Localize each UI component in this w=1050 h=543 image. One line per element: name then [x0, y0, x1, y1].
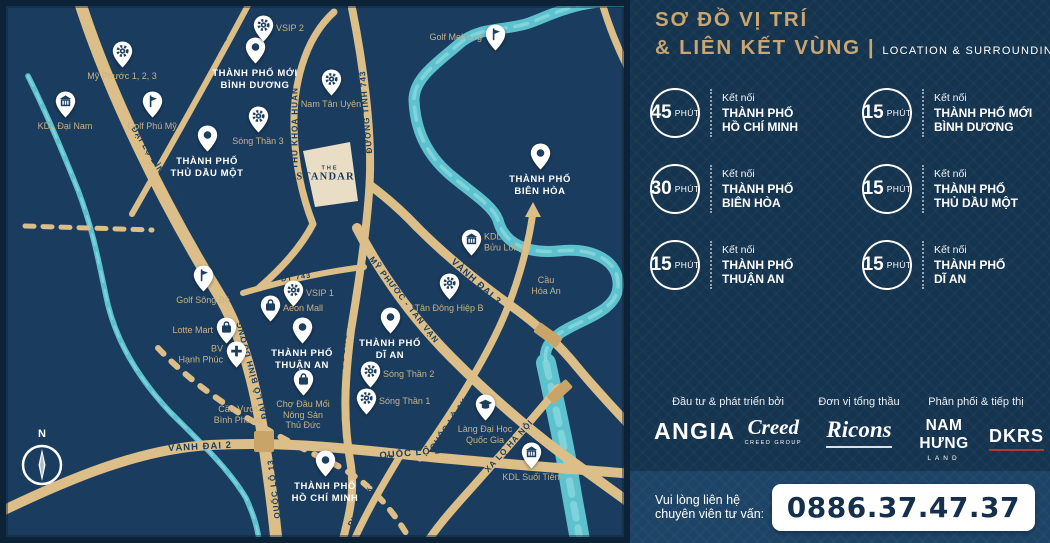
dotted-separator [710, 89, 712, 137]
poi-label: Aeon Mall [283, 303, 323, 314]
time-circle: 15PHÚT [650, 240, 700, 290]
namhung-land-subtext: LAND [908, 455, 980, 462]
city-label: THÀNH PHỐ THỦ DẦU MỘT [142, 156, 272, 179]
time-value: 45 [651, 102, 672, 124]
travel-time-item: 15PHÚTKết nốiTHÀNH PHỐ MỚI BÌNH DƯƠNG [862, 86, 1050, 140]
time-circle: 15PHÚT [862, 240, 912, 290]
time-unit: PHÚT [887, 260, 912, 270]
poi-label: Golf MeKong [429, 32, 482, 43]
cross-poi-pin [226, 341, 247, 368]
time-prefix: Kết nối [722, 244, 793, 258]
bag-poi-pin [260, 295, 281, 322]
title-divider: | [868, 36, 876, 59]
time-prefix: Kết nối [934, 168, 1018, 182]
creed-group-subtext: CREED GROUP [745, 440, 802, 446]
poi-label: Sóng Thần 3 [203, 136, 313, 147]
page-title-line2: & LIÊN KẾT VÙNG|LOCATION & SURROUNDINGS [655, 34, 1040, 65]
ricons-logo: Ricons [826, 417, 891, 448]
time-destination: Kết nốiTHÀNH PHỐ BIÊN HÒA [722, 168, 793, 211]
namhung-logo-text: NAM HƯNG [919, 417, 968, 452]
poi-label: VSIP 1 [306, 288, 334, 299]
dotted-separator [922, 89, 924, 137]
info-panel: SƠ ĐỒ VỊ TRÍ & LIÊN KẾT VÙNG|LOCATION & … [630, 0, 1050, 543]
contact-label: Vui lòng liên hệ chuyên viên tư vấn: [630, 493, 772, 521]
dkrs-logo: DKRS [989, 428, 1044, 452]
road-label: MỸ PHƯỚC - TÂN VẠN [367, 255, 440, 345]
location-map-infographic: THE STANDARD ĐẠI LỘ BÌNH DƯƠNGĐƯỜNG TỈNH… [0, 0, 1050, 543]
time-destination: Kết nốiTHÀNH PHỐ THỦ DẦU MỘT [934, 168, 1018, 211]
partner-group-contractor: Đơn vị tổng thầu Ricons [816, 396, 902, 448]
distributor-heading: Phân phối & tiếp thị [908, 396, 1044, 408]
contractor-heading: Đơn vị tổng thầu [816, 396, 902, 408]
gear-poi-pin [112, 41, 133, 68]
grad-poi-pin [475, 394, 496, 421]
compass-rose: N [18, 428, 66, 494]
compass-north-label: N [18, 428, 66, 440]
travel-times-grid: 45PHÚTKết nốiTHÀNH PHỐ HỒ CHÍ MINH15PHÚT… [650, 86, 1050, 292]
gear-poi-pin [321, 69, 342, 96]
city-pin [530, 143, 551, 170]
gear-poi-pin [356, 388, 377, 415]
partner-group-distributor: Phân phối & tiếp thị NAM HƯNG LAND DKRS [908, 396, 1044, 462]
partner-group-developer: Đầu tư & phát triển bởi ANGIA Creed CREE… [644, 396, 812, 446]
time-circle: 45PHÚT [650, 88, 700, 138]
time-prefix: Kết nối [934, 92, 1032, 106]
travel-time-item: 15PHÚTKết nốiTHÀNH PHỐ THUẬN AN [650, 238, 862, 292]
poi-label: Chợ Đầu Mối Nông Sản Thủ Đức [248, 399, 358, 431]
time-destination: Kết nốiTHÀNH PHỐ MỚI BÌNH DƯƠNG [934, 92, 1032, 135]
panel-header: SƠ ĐỒ VỊ TRÍ & LIÊN KẾT VÙNG|LOCATION & … [655, 6, 1040, 65]
phone-number[interactable]: 0886.37.47.37 [772, 484, 1035, 531]
city-label: THÀNH PHỐ DĨ AN [325, 338, 455, 361]
flag-poi-pin [142, 91, 163, 118]
time-prefix: Kết nối [722, 92, 798, 106]
page-title-line1: SƠ ĐỒ VỊ TRÍ [655, 6, 1040, 34]
poi-label: VSIP 2 [276, 23, 304, 34]
compass-icon [18, 441, 66, 489]
dotted-separator [922, 241, 924, 289]
building-poi-pin [521, 442, 542, 469]
time-unit: PHÚT [887, 108, 912, 118]
time-unit: PHÚT [887, 184, 912, 194]
poi-label: Lotte Mart [172, 325, 213, 336]
poi-label: KDL Bửu Long [484, 232, 524, 253]
travel-time-item: 30PHÚTKết nốiTHÀNH PHỐ BIÊN HÒA [650, 162, 862, 216]
building-poi-pin [55, 91, 76, 118]
time-destination: Kết nốiTHÀNH PHỐ THUẬN AN [722, 244, 793, 287]
page-title-vn: & LIÊN KẾT VÙNG [655, 36, 861, 59]
time-value: 15 [651, 254, 672, 276]
time-value: 15 [863, 254, 884, 276]
poi-label: Golf Phú Mỹ [97, 121, 207, 132]
city-label: THÀNH PHỐ HỒ CHÍ MINH [260, 481, 390, 504]
flag-poi-pin [193, 265, 214, 292]
time-destination: Kết nốiTHÀNH PHỐ DĨ AN [934, 244, 1005, 287]
travel-time-item: 15PHÚTKết nốiTHÀNH PHỐ DĨ AN [862, 238, 1050, 292]
bag-poi-pin [293, 369, 314, 396]
poi-label: BV Hạnh Phúc [178, 344, 223, 365]
time-value: 15 [863, 102, 884, 124]
map-canvas: THE STANDARD ĐẠI LỘ BÌNH DƯƠNGĐƯỜNG TỈNH… [0, 0, 630, 543]
time-prefix: Kết nối [934, 244, 1005, 258]
namhung-land-logo: NAM HƯNG LAND [908, 417, 980, 462]
poi-label: Golf Sông Bé [148, 295, 258, 306]
travel-time-item: 15PHÚTKết nốiTHÀNH PHỐ THỦ DẦU MỘT [862, 162, 1050, 216]
gear-poi-pin [253, 15, 274, 42]
contact-bar: Vui lòng liên hệ chuyên viên tư vấn: 088… [630, 471, 1050, 543]
dkrs-logo-text: DKRS [989, 426, 1044, 446]
gear-poi-pin [248, 106, 269, 133]
time-unit: PHÚT [675, 260, 700, 270]
time-circle: 30PHÚT [650, 164, 700, 214]
page-title-en: LOCATION & SURROUNDINGS [882, 45, 1050, 57]
developer-heading: Đầu tư & phát triển bởi [644, 396, 812, 408]
bridge-label: Cầu Hóa An [501, 275, 591, 297]
poi-label: Mỹ Phước 1, 2, 3 [67, 71, 177, 82]
city-pin [292, 317, 313, 344]
building-poi-pin [461, 229, 482, 256]
poi-label: Sóng Thần 2 [383, 369, 434, 380]
time-unit: PHÚT [675, 108, 700, 118]
partners-section: Đầu tư & phát triển bởi ANGIA Creed CREE… [630, 396, 1050, 466]
poi-label: Tân Đông Hiệp B [394, 303, 504, 314]
city-label: THÀNH PHỐ MỚI BÌNH DƯƠNG [190, 68, 320, 91]
road-label: VÀNH ĐAI 2 [168, 440, 232, 454]
dotted-separator [710, 241, 712, 289]
poi-label: Sóng Thần 1 [379, 396, 430, 407]
road-label: ĐƯỜNG TỈNH 743 [358, 70, 374, 154]
dotted-separator [922, 165, 924, 213]
time-destination: Kết nốiTHÀNH PHỐ HỒ CHÍ MINH [722, 92, 798, 135]
map-overlays: ĐẠI LỘ BÌNH DƯƠNGĐƯỜNG TỈNH 741THỦ KHOA … [0, 0, 630, 543]
poi-label: Nam Tân Uyên [276, 99, 386, 110]
gear-poi-pin [360, 361, 381, 388]
dkrs-logo-bar [989, 449, 1044, 452]
travel-time-item: 45PHÚTKết nốiTHÀNH PHỐ HỒ CHÍ MINH [650, 86, 862, 140]
time-unit: PHÚT [675, 184, 700, 194]
creed-logo-text: Creed [748, 415, 799, 439]
flag-poi-pin [485, 24, 506, 51]
time-value: 30 [651, 178, 672, 200]
gear-poi-pin [439, 273, 460, 300]
poi-label: KDL Suối Tiên [476, 472, 586, 483]
dotted-separator [710, 165, 712, 213]
time-circle: 15PHÚT [862, 164, 912, 214]
bag-poi-pin [216, 317, 237, 344]
angia-logo: ANGIA [654, 418, 736, 445]
city-pin [315, 450, 336, 477]
time-circle: 15PHÚT [862, 88, 912, 138]
city-label: THÀNH PHỐ BIÊN HÒA [475, 174, 605, 197]
creed-logo: Creed CREED GROUP [745, 417, 802, 446]
time-value: 15 [863, 178, 884, 200]
time-prefix: Kết nối [722, 168, 793, 182]
